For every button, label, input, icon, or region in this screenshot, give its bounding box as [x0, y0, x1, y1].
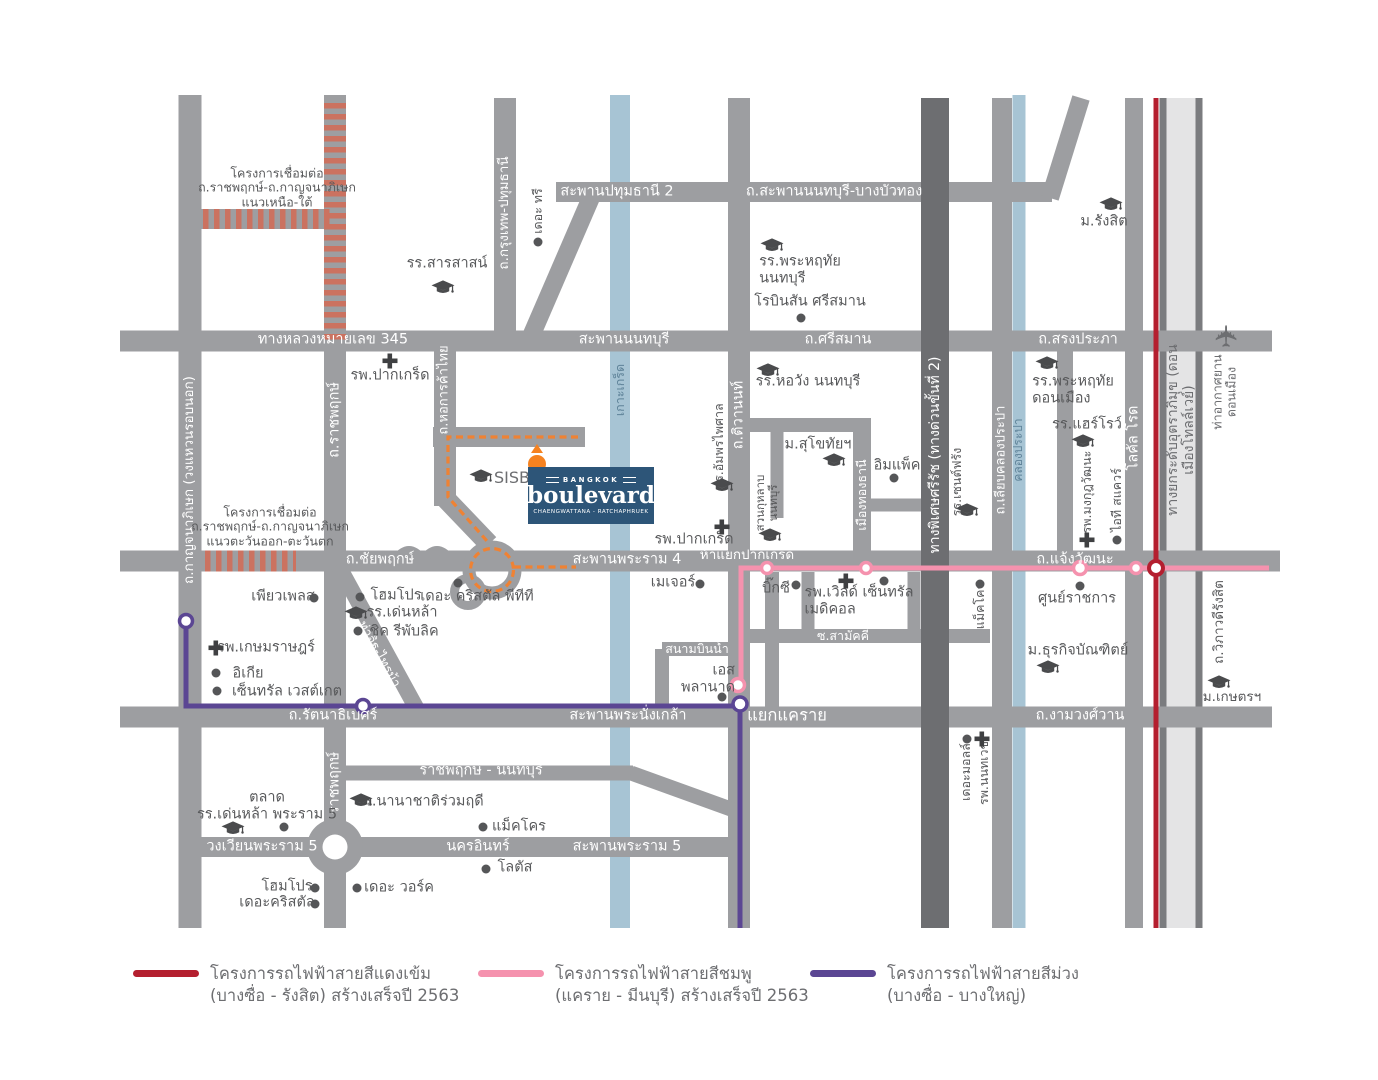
- label-amphornpaisarn-school: รร.อัมพรไพศาล: [712, 403, 726, 488]
- label-yaek-khae-rai: แยกแคราย: [747, 707, 827, 726]
- label-homepro-rama5: โฮมโปร: [262, 879, 313, 896]
- place-icon-makro-nakhon-in: [479, 823, 488, 832]
- legend-purple-line1: โครงการรถไฟฟ้าสายสีม่วง: [887, 963, 1079, 985]
- label-the-mall: เดอะมอลล์: [959, 743, 973, 801]
- label-homepro-chaiyapruek: โฮมโปร: [371, 588, 422, 605]
- label-hokankha-thai: ถ.หอการค้าไทย: [438, 345, 453, 434]
- label-rangsit-university: ม.รังสิต: [1080, 214, 1127, 231]
- legend-red-line1: โครงการรถไฟฟ้าสายสีแดงเข้ม: [210, 963, 459, 985]
- label-makro-chaengwattana: แม็คโคร: [973, 583, 987, 629]
- legend-pink-line2: (แคราย - มีนบุรี) สร้างเสร็จปี 2563: [555, 985, 809, 1007]
- label-the-walk: เดอะ วอร์ค: [364, 880, 434, 897]
- label-phraharuthai-nonthaburi-school: รร.พระหฤทัย นนทบุรี: [759, 253, 841, 286]
- place-icon-lotus: [482, 865, 491, 874]
- label-ruamrudee-international-school: รร.นานาชาติร่วมฤดี: [356, 794, 483, 811]
- hospital-icon-world-central-medical: [839, 574, 854, 589]
- label-vibhavadi-rangsit: ถ.วิภาวดีรังสิต: [1212, 580, 1228, 664]
- place-icon-the-walk: [353, 884, 362, 893]
- label-sukhothai-university: ม.สุโขทัยฯ: [785, 437, 852, 454]
- label-liab-khlong-prapa: ถ.เลียบคลองประปา: [995, 406, 1010, 515]
- school-icon-ruamrudee: [350, 793, 373, 809]
- place-icon-impact: [890, 474, 899, 483]
- label-ratchaphruek-nonthaburi-road: ราชพฤกษ์ - นนทบุรี: [419, 763, 542, 780]
- place-icon-it-square: [1113, 536, 1122, 545]
- label-wongwian-rama5: วงเวียนพระราม 5: [206, 839, 317, 856]
- place-icon-the-crystal-rama5: [311, 900, 320, 909]
- label-soi-samakkhi: ซ.สามัคคี: [817, 629, 869, 643]
- label-major: เมเจอร์: [651, 575, 695, 592]
- label-it-square: ไอที สแควร์: [1110, 468, 1124, 532]
- place-icon-big-c: [792, 581, 801, 590]
- school-icon-sarasas: [432, 280, 455, 296]
- label-phraharuthai-donmueang-school: รร.พระหฤทัย ดอนเมือง: [1032, 373, 1114, 406]
- label-suankularb-nonthaburi-school: สวนกุหลาบ นนทบุรี: [754, 475, 780, 532]
- place-icon-talad-rama5: [280, 823, 289, 832]
- label-central-westgate: เซ็นทรัล เวสต์เกต: [232, 684, 342, 701]
- label-rattanathibet: ถ.รัตนาธิเบศร์: [289, 708, 378, 725]
- label-harrow-school: รร.แฮร์โรว์: [1052, 417, 1122, 434]
- label-world-central-medical: รพ.เวิลด์ เซ็นทรัล เมดิคอล: [805, 584, 914, 617]
- legend-red-line2: (บางซื่อ - รังสิต) สร้างเสร็จปี 2563: [210, 985, 459, 1007]
- school-icon-dhurakij-pundit: [1037, 660, 1060, 676]
- legend-item-red-line: โครงการรถไฟฟ้าสายสีแดงเข้ม (บางซื่อ - รั…: [133, 963, 459, 1007]
- place-icon-esplanade: [718, 693, 727, 702]
- label-pure-place: เพียวเพลส: [251, 589, 314, 606]
- label-don-mueang-airport: ท่าอากาศยาน ดอนเมือง: [1211, 354, 1240, 429]
- place-icon-chic-republic: [354, 627, 363, 636]
- label-pakkret-hospital-west: รพ.ปากเกร็ด: [350, 368, 429, 385]
- note-link-project-north-south: โครงการเชื่อมต่อ ถ.ราชพฤกษ์-ถ.กาญจนาภิเษ…: [198, 166, 356, 209]
- label-saphan-rama4: สะพานพระราม 4: [573, 552, 682, 569]
- label-chaiyapruek: ถ.ชัยพฤกษ์: [346, 552, 414, 569]
- label-saphan-rama5: สะพานพระราม 5: [573, 839, 682, 856]
- legend-text-pink: โครงการรถไฟฟ้าสายสีชมพู (แคราย - มีนบุรี…: [555, 963, 809, 1007]
- label-saphan-pathumthani-2: สะพานปทุมธานี 2: [560, 184, 673, 201]
- school-icon-sisb: [470, 469, 493, 485]
- label-krungthep-pathumthani: ถ.กรุงเทพ-ปทุมธานี: [497, 156, 513, 269]
- label-chic-republic: ชิค รีพับลิค: [369, 624, 438, 641]
- project-logo: BANGKOK boulevard CHAENGWATTANA - RATCHA…: [528, 467, 654, 524]
- place-icon-the-tree: [534, 238, 543, 247]
- label-robinson-srisaman: โรบินสัน ศรีสมาน: [754, 294, 866, 311]
- legend-item-pink-line: โครงการรถไฟฟ้าสายสีชมพู (แคราย - มีนบุรี…: [478, 963, 809, 1007]
- label-nakhon-in: นครอินทร์: [446, 839, 509, 856]
- label-impact: อิมแพ็ค: [874, 458, 921, 475]
- school-icon-horwang: [757, 363, 780, 379]
- place-icon-the-crystal-ptt: [454, 579, 463, 588]
- label-ha-yaek-pakkret: ห้าแยกปากเกร็ด: [700, 548, 794, 564]
- logo-brand-location: CHAENGWATTANA - RATCHAPHRUEK: [533, 509, 648, 515]
- school-icon-saint-francis: [956, 503, 979, 519]
- place-icon-government-complex: [1076, 582, 1085, 591]
- hospital-icon-pakkret-west: [383, 354, 398, 369]
- hospital-icon-kasemrad: [209, 641, 224, 656]
- label-kasetsart-university: ม.เกษตรฯ: [1203, 690, 1261, 706]
- map-screenshot: ทางหลวงหมายเลข 345สะพานนนทบุรีถ.ศรีสมานถ…: [0, 0, 1378, 1080]
- label-government-complex: ศูนย์ราชการ: [1038, 591, 1116, 608]
- label-saphan-nonthaburi-bangbuathong: ถ.สะพานนนทบุรี-บางบัวทอง: [746, 184, 922, 201]
- school-icon-phraharuthai-nonthaburi: [761, 238, 784, 254]
- legend-text-red: โครงการรถไฟฟ้าสายสีแดงเข้ม (บางซื่อ - รั…: [210, 963, 459, 1007]
- label-the-crystal-ptt: เดอะ คริสตัล พีทีที: [420, 589, 533, 606]
- legend-swatch-red: [133, 970, 199, 977]
- legend-swatch-pink: [478, 970, 544, 977]
- label-sarasas-school: รร.สารสาสน์: [407, 256, 488, 273]
- label-makro-nakhon-in: แม็คโคร: [492, 819, 546, 836]
- label-sanambinnam: สนามบินน้ำ: [665, 642, 728, 656]
- place-icon-the-mall: [963, 735, 972, 744]
- school-icon-phraharuthai-donmueang: [1036, 356, 1059, 372]
- label-tiwanon: ถ.ติวานนท์: [731, 381, 748, 449]
- school-icon-amphornpaisarn: [711, 478, 734, 494]
- airplane-icon-don-mueang: ✈: [1213, 323, 1243, 348]
- label-ikea: อิเกีย: [233, 666, 264, 683]
- label-the-crystal-rama5: เดอะคริสตัล: [239, 895, 315, 912]
- school-icon-kasetsart: [1208, 675, 1231, 691]
- label-hwy-345: ทางหลวงหมายเลข 345: [258, 332, 408, 349]
- label-songprapa: ถ.สรงประภา: [1038, 332, 1118, 349]
- place-icon-homepro-rama5: [311, 884, 320, 893]
- place-icon-makro-chaengwattana: [976, 580, 985, 589]
- label-srisaman: ถ.ศรีสมาน: [805, 332, 872, 349]
- place-icon-major: [696, 580, 705, 589]
- place-icon-pure-place: [310, 594, 319, 603]
- label-local-road: โลคัล โรด: [1126, 406, 1143, 471]
- school-icon-denla: [345, 606, 368, 622]
- hospital-icon-pakkret-east: [715, 520, 730, 535]
- label-mongkutwattana-hospital: รพ.มงกุฎวัฒนะ: [1080, 451, 1094, 534]
- place-icon-robinson: [797, 314, 806, 323]
- label-sisb: SISB: [494, 469, 530, 487]
- label-chaengwattana: ถ.แจ้งวัฒนะ: [1036, 552, 1113, 569]
- school-icon-denla-rama5: [222, 821, 245, 837]
- hospital-icon-mongkutwattana: [1080, 533, 1095, 548]
- label-tollway: ทางยกระดับอุตราภิมุข (ดอนเมืองโทลล์เวย์): [1165, 332, 1197, 529]
- label-khlong-prapa: คลองประปา: [1012, 418, 1026, 481]
- label-big-c: บิ๊กซี: [762, 581, 790, 598]
- legend-purple-line2: (บางซื่อ - บางใหญ่): [887, 985, 1079, 1007]
- hospital-icon-nonthavej: [975, 732, 990, 747]
- logo-brand-name: boulevard: [527, 484, 655, 508]
- place-icon-ikea: [212, 669, 221, 678]
- label-koh-kret: เกาะเกร็ด: [613, 364, 627, 416]
- place-icon-homepro-chaiyapruek: [356, 593, 365, 602]
- legend-item-purple-line: โครงการรถไฟฟ้าสายสีม่วง (บางซื่อ - บางให…: [810, 963, 1079, 1007]
- school-icon-suankularb: [759, 528, 782, 544]
- school-icon-sukhothai: [823, 453, 846, 469]
- label-lotus: โลตัส: [498, 860, 533, 877]
- legend: โครงการรถไฟฟ้าสายสีแดงเข้ม (บางซื่อ - รั…: [0, 958, 1378, 1028]
- label-saphan-nonthaburi: สะพานนนทบุรี: [579, 332, 670, 349]
- map-label-layer: ทางหลวงหมายเลข 345สะพานนนทบุรีถ.ศรีสมานถ…: [0, 0, 1378, 1080]
- label-the-tree: เดอะ ทรี: [531, 188, 545, 234]
- label-nonthavej-hospital: รพ.นนทเวช: [977, 741, 991, 805]
- legend-swatch-purple: [810, 970, 876, 977]
- legend-text-purple: โครงการรถไฟฟ้าสายสีม่วง (บางซื่อ - บางให…: [887, 963, 1079, 1007]
- legend-pink-line1: โครงการรถไฟฟ้าสายสีชมพู: [555, 963, 809, 985]
- school-icon-harrow: [1072, 434, 1095, 450]
- label-kanchanaphisek: ถ.กาญจนาภิเษก (วงแหวนรอบนอก): [182, 376, 198, 584]
- label-muangthongthani: เมืองทองธานี: [855, 459, 869, 530]
- label-kasemrad-hospital: รพ.เกษมราษฎร์: [217, 640, 315, 657]
- label-srirat-expressway: ทางพิเศษศรีรัช (ทางด่วนขั้นที่ 2): [927, 356, 943, 553]
- label-esplanade: เอส พลานาด: [681, 662, 735, 695]
- label-talad-denla-rama5: ตลาด รร.เด่นหล้า พระราม 5: [197, 789, 337, 822]
- school-icon-rangsit: [1100, 197, 1123, 213]
- label-ratchaphruek-upper: ถ.ราชพฤกษ์: [327, 382, 344, 458]
- label-denla-school: รร.เด่นหล้า: [366, 605, 437, 622]
- label-ngamwongwan: ถ.งามวงศ์วาน: [1036, 708, 1125, 725]
- place-icon-world-central-medical: [880, 577, 889, 586]
- note-link-project-east-west: โครงการเชื่อมต่อ ถ.ราชพฤกษ์-ถ.กาญจนาภิเษ…: [191, 505, 349, 548]
- place-icon-central-westgate: [213, 687, 222, 696]
- label-dhurakij-pundit-university: ม.ธุรกิจบัณฑิตย์: [1028, 643, 1129, 660]
- label-saphan-phranangklao: สะพานพระนั่งเกล้า: [569, 708, 686, 725]
